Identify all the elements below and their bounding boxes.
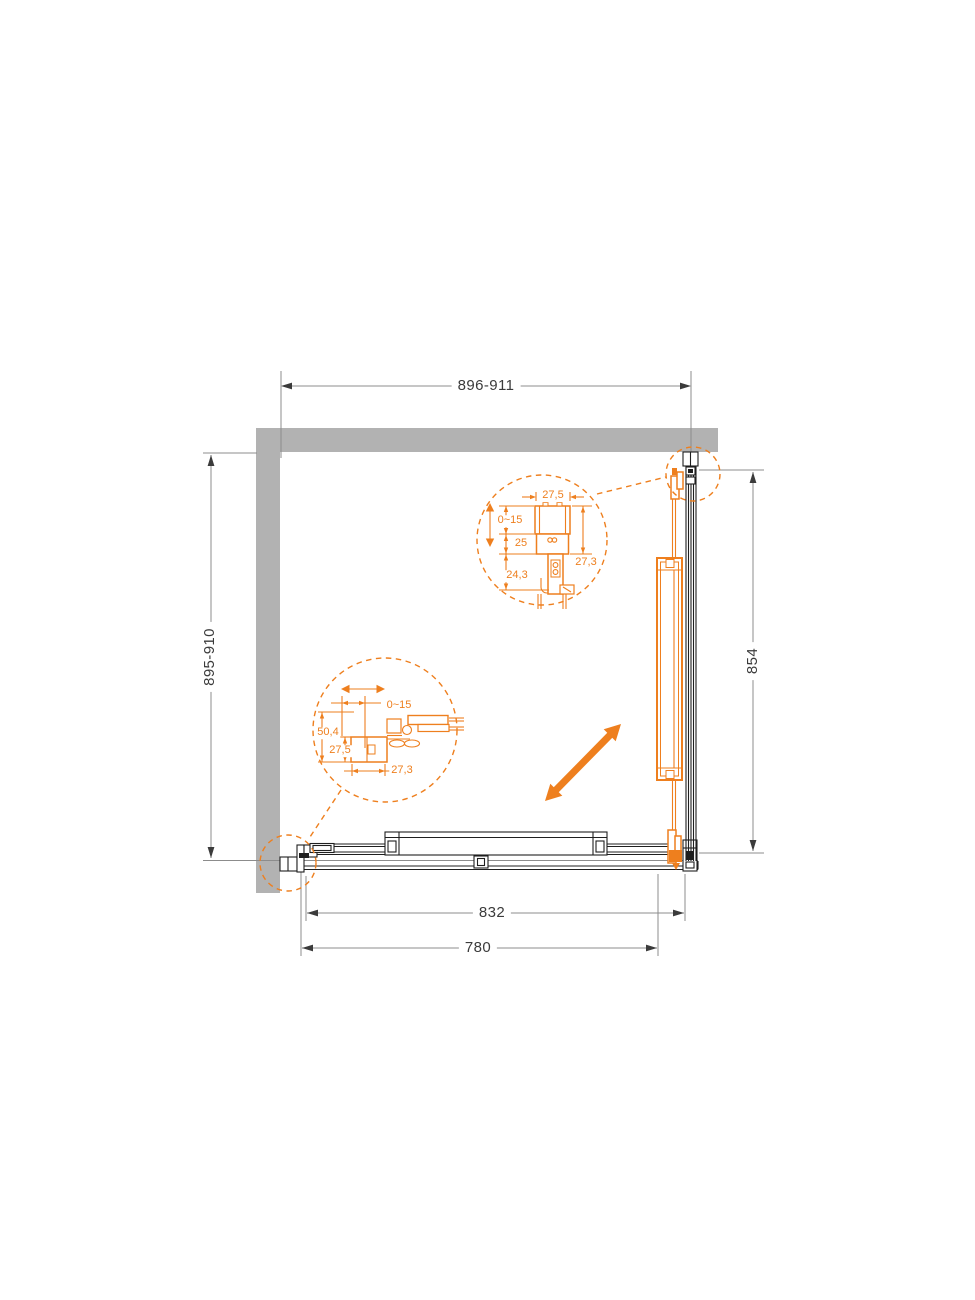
bottom-opening-dimension: 780 (459, 940, 497, 957)
wall-sections (256, 428, 718, 893)
left-depth-dimension: 895-910 (202, 622, 219, 692)
detail-top-mid-offset: 25 (513, 538, 529, 550)
detail-wall-profile-height: 27,5 (327, 745, 352, 757)
technical-drawing-canvas: 896-911 895-910 854 832 780 27,5 0~15 25… (0, 0, 975, 1300)
horizontal-adjust-arrow-icon (341, 685, 385, 693)
vertical-adjust-arrow-icon (486, 503, 494, 547)
detail-wall-overall-depth: 50,4 (315, 727, 340, 739)
detail-top-profile-width: 27,5 (540, 490, 565, 502)
top-wall (258, 428, 718, 452)
shower-enclosure-plan-drawing (0, 0, 975, 1300)
right-side-dimension: 854 (745, 642, 762, 680)
detail-top-lower-depth: 24,3 (504, 570, 529, 582)
top-width-dimension: 896-911 (452, 378, 521, 395)
detail-top-overall-height: 27,3 (573, 557, 598, 569)
detail-wall-adjust-range: 0~15 (385, 700, 414, 712)
bottom-door-panel (385, 832, 607, 855)
right-sliding-door (657, 468, 683, 870)
top-roller-bracket (671, 468, 683, 499)
right-rail-assembly (683, 452, 698, 861)
bottom-roller-bracket (668, 780, 682, 870)
detail-wall-profile-width: 27,3 (389, 765, 414, 777)
detail-top-adjust-range: 0~15 (496, 515, 525, 527)
bottom-outer-dimension: 832 (473, 905, 511, 922)
diagonal-arrow-icon (545, 724, 621, 801)
left-wall (256, 428, 280, 893)
bottom-door-assembly (280, 832, 698, 872)
